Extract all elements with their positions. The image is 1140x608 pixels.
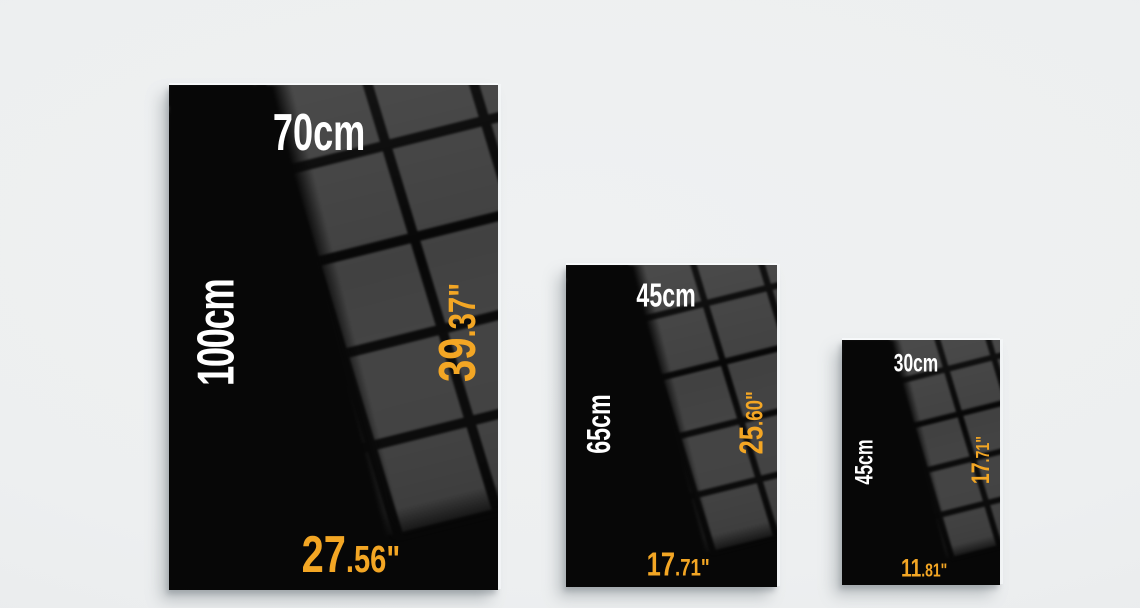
svg-text:45cm: 45cm xyxy=(851,439,879,484)
svg-text:65cm: 65cm xyxy=(581,394,618,453)
svg-text:100cm: 100cm xyxy=(189,280,246,386)
svg-text:70cm: 70cm xyxy=(273,104,366,162)
svg-text:45cm: 45cm xyxy=(636,277,695,314)
svg-text:30cm: 30cm xyxy=(894,348,938,377)
